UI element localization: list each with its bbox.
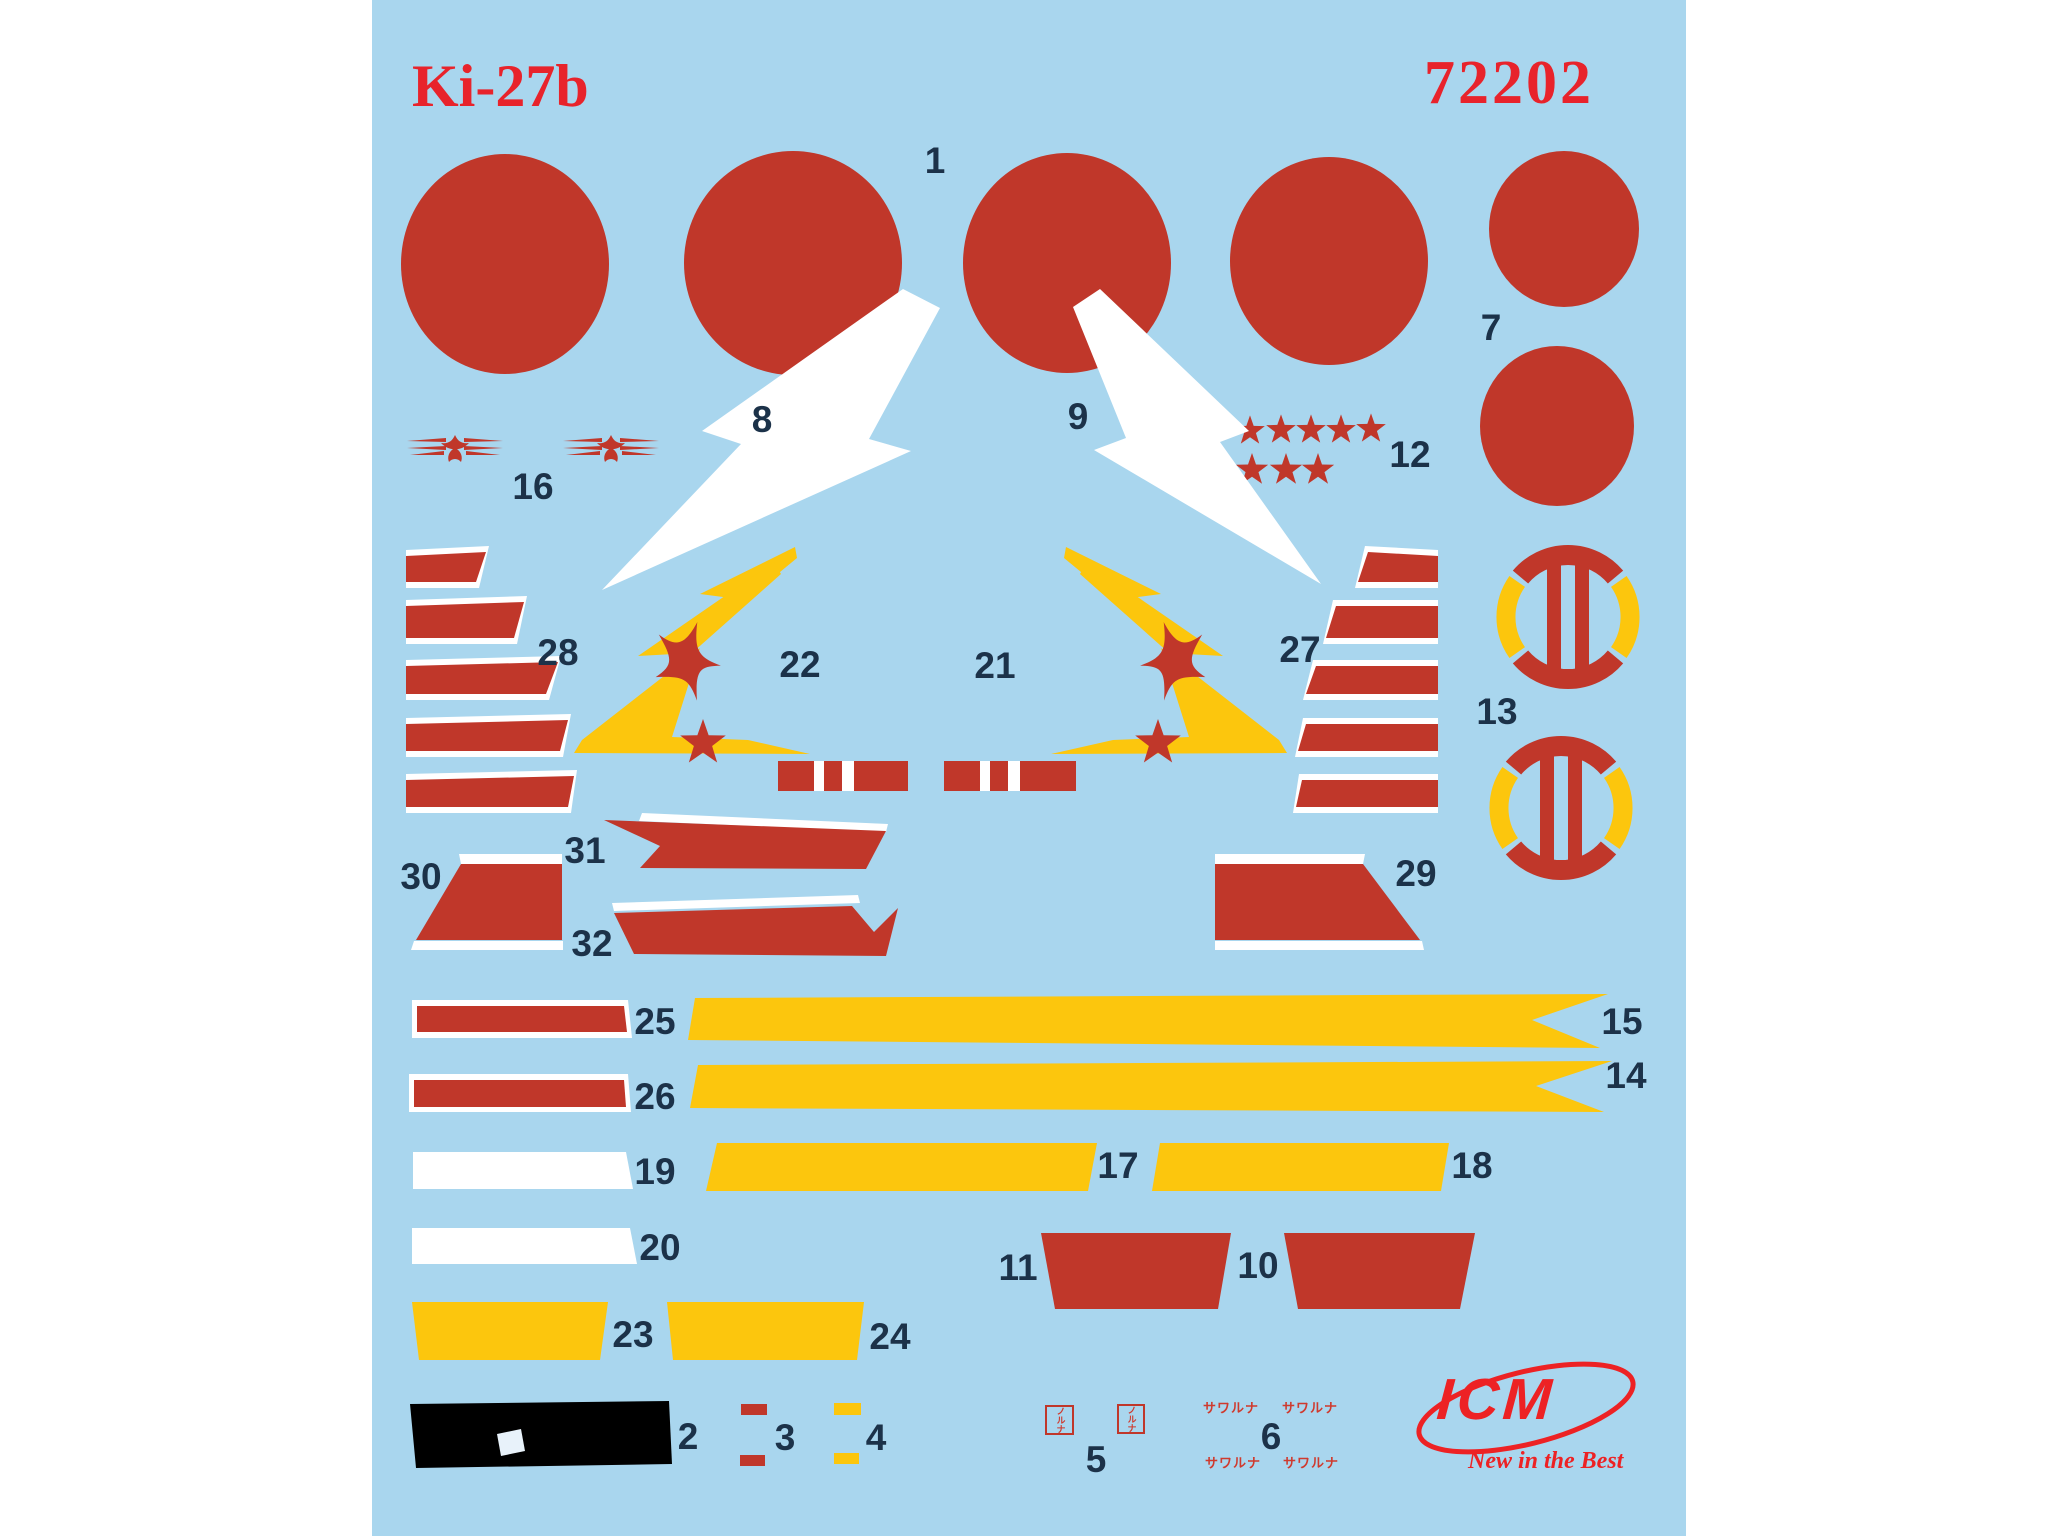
striped-bands — [778, 761, 1076, 791]
decal-label-6: 6 — [1261, 1416, 1282, 1458]
decal-label-27: 27 — [1279, 629, 1320, 671]
decal-label-12: 12 — [1389, 434, 1430, 476]
yellow-dashes-4 — [834, 1403, 861, 1464]
decal-label-8: 8 — [752, 399, 773, 441]
fuselage-arrow-32 — [612, 895, 898, 956]
sheet-title: Ki-27b — [412, 52, 589, 121]
red-dashes-3 — [740, 1404, 767, 1466]
no-step-stencil-text: ノルナ — [1127, 1406, 1136, 1433]
decal-label-25: 25 — [634, 1001, 675, 1043]
yellow-stripe-15 — [688, 994, 1608, 1048]
icm-logo-tagline: New in the Best — [1468, 1448, 1623, 1475]
caution-stencil-text: サワルナ — [1282, 1398, 1338, 1417]
wing-trapezoid-29 — [1215, 854, 1424, 950]
caution-stencil-text: サワルナ — [1283, 1453, 1339, 1472]
decal-label-5: 5 — [1086, 1439, 1107, 1481]
decal-label-16: 16 — [512, 466, 553, 508]
yellow-lightning-left — [574, 547, 810, 762]
fuselage-arrow-31 — [604, 813, 888, 869]
decal-label-7: 7 — [1481, 307, 1502, 349]
caution-stencil-text: サワルナ — [1205, 1453, 1261, 1472]
decal-label-15: 15 — [1601, 1001, 1642, 1043]
decal-label-2: 2 — [678, 1416, 699, 1458]
decal-label-3: 3 — [775, 1417, 796, 1459]
decal-label-17: 17 — [1097, 1145, 1138, 1187]
decal-label-21: 21 — [974, 645, 1015, 687]
decal-label-29: 29 — [1395, 853, 1436, 895]
yellow-trapezoid-24 — [667, 1302, 864, 1360]
unit-roundels — [1499, 555, 1630, 870]
yellow-bar-18 — [1152, 1143, 1449, 1191]
decal-label-24: 24 — [869, 1316, 910, 1358]
yellow-trapezoid-23 — [412, 1302, 608, 1360]
red-trapezoid-11 — [1041, 1233, 1231, 1309]
decal-label-1: 1 — [925, 140, 946, 182]
no-step-stencil-text: ノルナ — [1056, 1407, 1065, 1434]
red-band-26 — [409, 1074, 631, 1112]
decal-label-13: 13 — [1476, 691, 1517, 733]
decal-label-4: 4 — [866, 1417, 887, 1459]
decal-label-20: 20 — [639, 1227, 680, 1269]
decal-label-26: 26 — [634, 1076, 675, 1118]
red-trapezoid-10 — [1284, 1233, 1475, 1309]
decal-label-9: 9 — [1068, 396, 1089, 438]
white-band-20 — [412, 1228, 637, 1264]
decal-artwork — [0, 0, 2048, 1536]
decal-label-14: 14 — [1605, 1055, 1646, 1097]
fin-flash-left — [406, 546, 577, 813]
product-code: 72202 — [1424, 48, 1594, 119]
fin-flash-right — [1293, 546, 1438, 813]
decal-label-11: 11 — [998, 1247, 1037, 1289]
decal-label-22: 22 — [779, 644, 820, 686]
decal-label-19: 19 — [634, 1151, 675, 1193]
red-band-25 — [412, 1000, 632, 1038]
decal-label-31: 31 — [564, 830, 605, 872]
caution-stencil-text: サワルナ — [1203, 1398, 1259, 1417]
victory-stars — [1235, 413, 1386, 483]
yellow-bar-17 — [706, 1143, 1097, 1191]
decal-label-10: 10 — [1237, 1245, 1278, 1287]
black-panel-2 — [410, 1401, 672, 1468]
decal-label-18: 18 — [1451, 1145, 1492, 1187]
white-band-19 — [413, 1152, 633, 1189]
decal-label-28: 28 — [537, 632, 578, 674]
decal-label-30: 30 — [400, 856, 441, 898]
wing-eagle-emblems — [407, 435, 659, 462]
decal-label-32: 32 — [571, 923, 612, 965]
decal-label-23: 23 — [612, 1314, 653, 1356]
icm-logo-text: ICM — [1435, 1366, 1558, 1433]
yellow-lightning-right — [1051, 547, 1287, 762]
yellow-stripe-14 — [690, 1061, 1612, 1112]
